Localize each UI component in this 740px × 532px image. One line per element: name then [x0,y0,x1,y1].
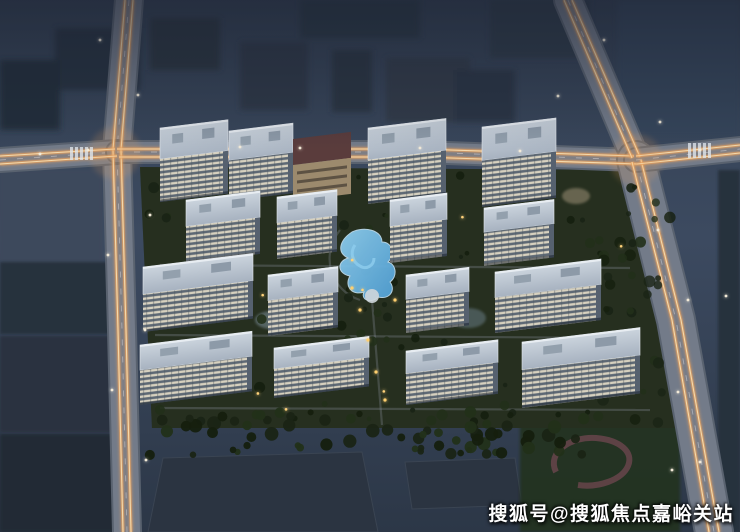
tower [186,191,260,263]
top-haze [0,0,740,150]
tower [406,340,498,405]
watermark-text: 搜狐号@搜狐焦点嘉峪关站 [488,499,734,526]
tower [277,190,337,259]
screenshot: 搜狐号@搜狐焦点嘉峪关站 [0,0,740,532]
tower [390,193,447,263]
aerial-night-render [0,0,740,532]
tower [406,267,469,333]
tower [484,199,554,266]
tower [268,266,338,336]
tower [143,253,253,332]
tower [495,259,601,333]
